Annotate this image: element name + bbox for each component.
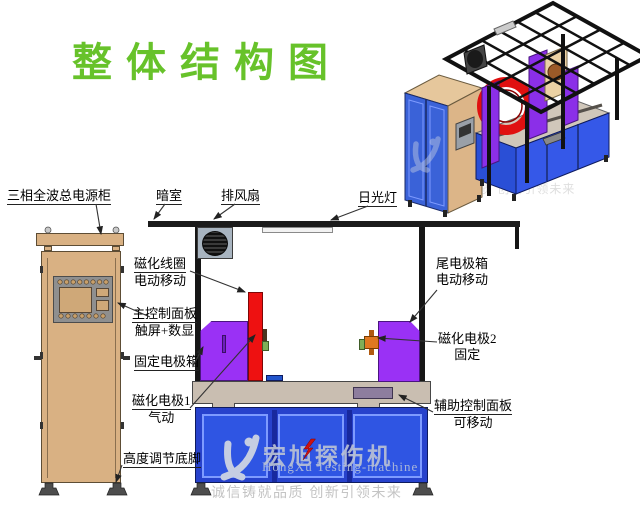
fluorescent-lamp (262, 227, 333, 233)
iso-fan-grille-icon (467, 50, 483, 68)
watermark-brand-en-faint: HongXu Testing-machine (455, 163, 569, 175)
iso-lamp (494, 21, 516, 35)
label-fluorescent-lamp: 日光灯 (358, 190, 397, 207)
label-magnetizing-electrode-2: 磁化电极2固定 (438, 331, 497, 363)
exhaust-fan (197, 227, 233, 259)
label-magnetizing-electrode-1: 磁化电极1气动 (132, 393, 191, 426)
power-cabinet-cap (36, 233, 124, 246)
base-door (202, 414, 268, 478)
structure-diagram: 整体结构图 (0, 0, 640, 512)
label-tail-electrode-box: 尾电极箱电动移动 (436, 256, 488, 288)
label-height-adjust-feet: 高度调节底脚 (123, 451, 201, 468)
label-main-control-panel: 主控制面板触屏+数显 (132, 306, 197, 339)
brand-logo-icon-faint (413, 139, 438, 171)
tail-electrode-box (378, 321, 420, 382)
watermark-tagline: 诚信铸就品质 创新引领未来 (211, 482, 402, 502)
electrode-2-block (364, 336, 379, 349)
iso-fan (464, 45, 487, 74)
label-power-cabinet: 三相全波总电源柜 (7, 188, 111, 205)
label-darkroom: 暗室 (156, 188, 182, 205)
fan-grille-icon (202, 231, 228, 256)
electrode-2-tip (359, 339, 365, 350)
label-exhaust-fan: 排风扇 (221, 188, 260, 205)
main-control-panel (53, 276, 113, 323)
label-aux-control-panel: 辅助控制面板可移动 (434, 398, 512, 431)
digital-display (96, 300, 109, 311)
aux-control-panel (353, 387, 393, 399)
table-top (192, 381, 431, 404)
label-fixed-electrode-box: 固定电极箱 (134, 354, 199, 371)
iso-machine-bed (476, 46, 609, 201)
page-title: 整体结构图 (72, 30, 342, 88)
magnetizing-coil-plate (248, 292, 263, 381)
electrode-1-tip (262, 341, 269, 351)
label-magnetizing-coil: 磁化线圈电动移动 (134, 256, 186, 289)
rail-block (266, 375, 283, 381)
touchscreen (59, 287, 92, 313)
watermark-tagline-faint: 诚信铸就品质 创新引领未来 (415, 180, 575, 197)
darkroom-right-end (515, 227, 519, 249)
watermark-brand-en: HongXu Testing-machine (262, 459, 418, 475)
fixed-electrode-box (200, 321, 248, 381)
digital-display (96, 288, 109, 297)
